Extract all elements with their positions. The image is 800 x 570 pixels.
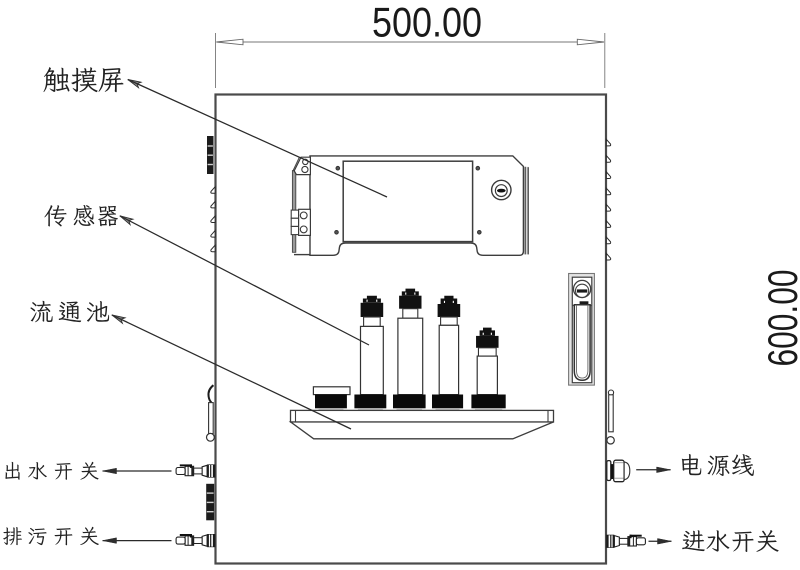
svg-text:500.00: 500.00 [372,0,482,46]
svg-text:600.00: 600.00 [759,270,800,367]
